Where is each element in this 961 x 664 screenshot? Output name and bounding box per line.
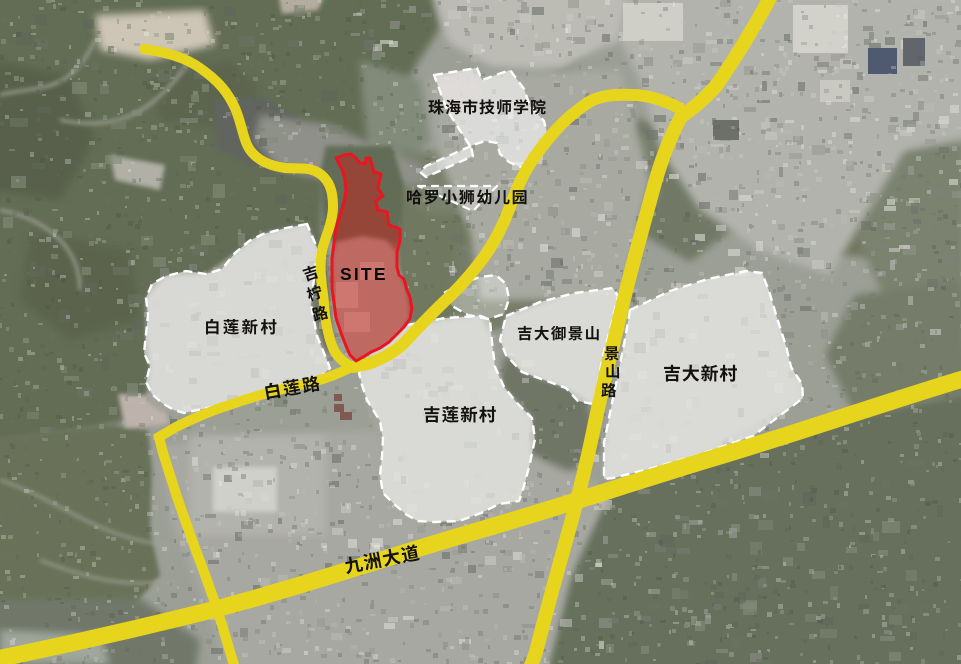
- svg-text:SITE: SITE: [340, 264, 388, 284]
